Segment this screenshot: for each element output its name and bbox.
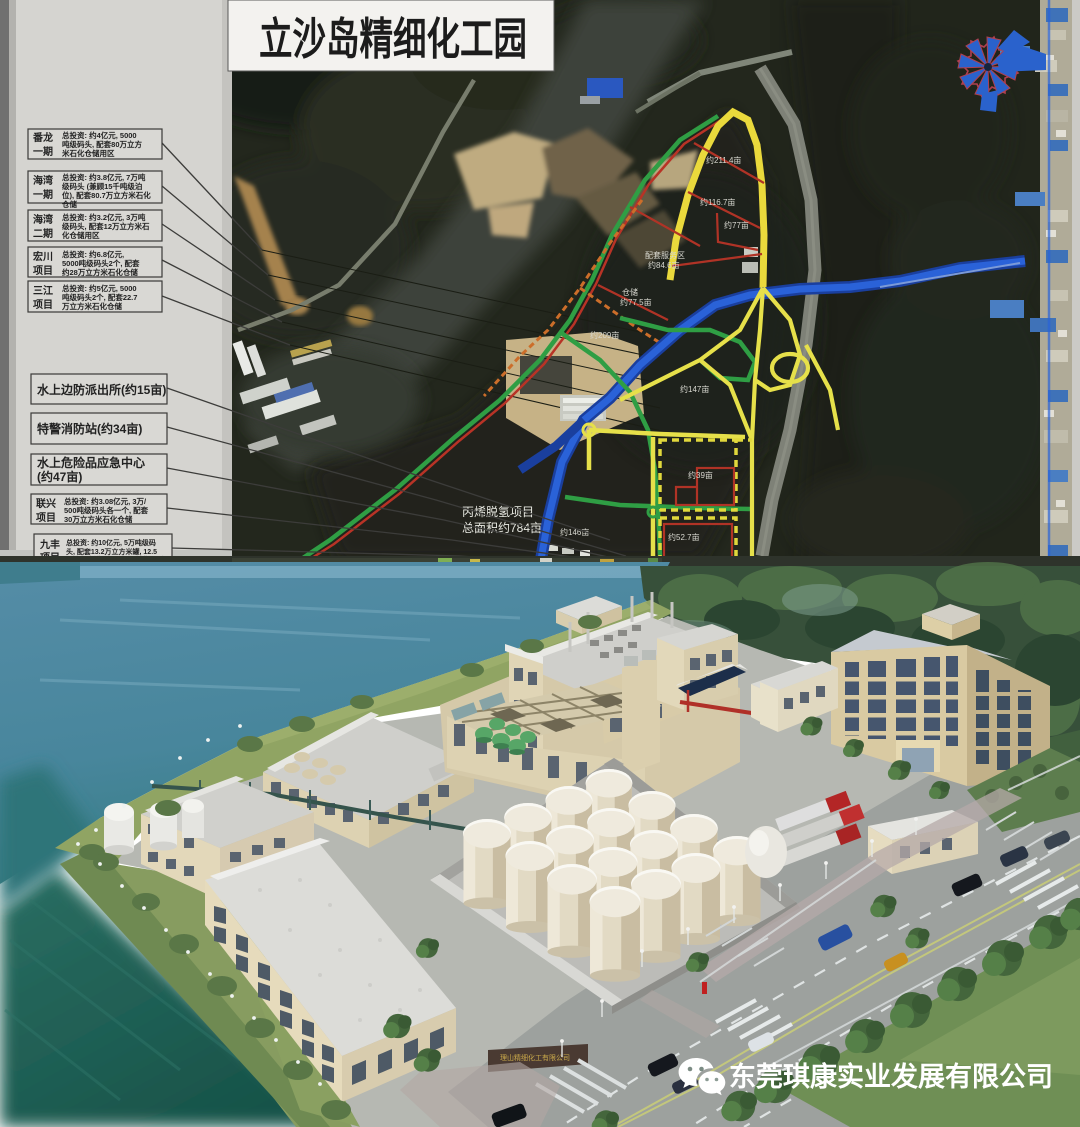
svg-text:约28万立方米石化仓储: 约28万立方米石化仓储	[62, 267, 138, 277]
svg-text:水上危险品应急中心: 水上危险品应急中心	[37, 455, 145, 470]
svg-text:海湾: 海湾	[33, 174, 53, 187]
svg-text:约77亩: 约77亩	[724, 220, 749, 230]
svg-text:项目: 项目	[36, 512, 56, 524]
svg-text:约77.5亩: 约77.5亩	[620, 297, 652, 307]
svg-text:吨级码头, 配套80万立方: 吨级码头, 配套80万立方	[62, 139, 143, 149]
svg-text:级码头 (兼顾15千吨级泊: 级码头 (兼顾15千吨级泊	[61, 181, 142, 191]
svg-text:项目: 项目	[33, 299, 53, 311]
svg-text:水上边防派出所(约15亩): 水上边防派出所(约15亩)	[37, 382, 166, 397]
svg-text:总投资: 约4亿元, 5000: 总投资: 约4亿元, 5000	[62, 130, 137, 140]
svg-text:化仓储用区: 化仓储用区	[62, 230, 100, 240]
svg-text:二期: 二期	[33, 227, 53, 240]
svg-text:级码头, 配套12万立方米石: 级码头, 配套12万立方米石	[61, 221, 150, 231]
svg-text:总投资: 约3.08亿元, 3万/: 总投资: 约3.08亿元, 3万/	[64, 496, 147, 506]
svg-text:九丰: 九丰	[39, 538, 60, 551]
svg-text:约39亩: 约39亩	[688, 470, 713, 480]
svg-text:三江: 三江	[33, 284, 53, 297]
svg-text:配套服务区: 配套服务区	[645, 250, 685, 260]
svg-text:宏川: 宏川	[33, 250, 53, 263]
svg-text:特警消防站(约34亩): 特警消防站(约34亩)	[37, 421, 142, 436]
svg-text:约116.7亩: 约116.7亩	[700, 197, 735, 207]
svg-text:米石化仓储用区: 米石化仓储用区	[62, 148, 115, 158]
svg-text:(约47亩): (约47亩)	[37, 469, 82, 484]
svg-text:约211.4亩: 约211.4亩	[706, 155, 741, 165]
svg-text:仓储: 仓储	[61, 199, 77, 209]
svg-text:总投资: 约5亿元, 5000: 总投资: 约5亿元, 5000	[62, 283, 137, 293]
svg-text:一期: 一期	[33, 188, 53, 201]
svg-text:头, 配套13.2万立方米罐, 12.5: 头, 配套13.2万立方米罐, 12.5	[66, 547, 157, 556]
svg-text:约84.6亩: 约84.6亩	[648, 260, 680, 270]
svg-text:位), 配套80.7万立方米石化: 位), 配套80.7万立方米石化	[62, 190, 151, 200]
svg-text:吨级码头2个, 配套22.7: 吨级码头2个, 配套22.7	[62, 292, 137, 302]
svg-text:联兴: 联兴	[36, 497, 56, 510]
svg-text:约209亩: 约209亩	[590, 330, 619, 340]
svg-text:约52.7亩: 约52.7亩	[668, 532, 700, 542]
svg-text:万立方米石化仓储: 万立方米石化仓储	[61, 301, 122, 311]
svg-text:番龙: 番龙	[32, 131, 53, 144]
svg-text:理山精细化工有限公司: 理山精细化工有限公司	[500, 1053, 570, 1062]
svg-text:立沙岛精细化工园: 立沙岛精细化工园	[259, 15, 527, 64]
svg-text:总投资: 约10亿元, 5万吨级码: 总投资: 约10亿元, 5万吨级码	[66, 538, 156, 547]
svg-text:海湾: 海湾	[33, 213, 53, 226]
svg-text:项目: 项目	[33, 265, 53, 277]
svg-text:约147亩: 约147亩	[680, 384, 709, 394]
svg-text:总投资: 约6.8亿元,: 总投资: 约6.8亿元,	[62, 249, 124, 259]
svg-text:东莞琪康实业发展有限公司: 东莞琪康实业发展有限公司	[729, 1061, 1053, 1092]
svg-text:总投资: 约3.2亿元, 3万吨: 总投资: 约3.2亿元, 3万吨	[62, 212, 146, 222]
svg-text:一期: 一期	[33, 145, 53, 158]
svg-text:仓储: 仓储	[622, 287, 638, 297]
svg-text:30万立方米石化仓储: 30万立方米石化仓储	[64, 514, 133, 524]
svg-text:500吨级码头各一个, 配套: 500吨级码头各一个, 配套	[64, 505, 149, 515]
svg-text:5000吨级码头2个, 配套: 5000吨级码头2个, 配套	[62, 258, 140, 268]
svg-text:总投资: 约3.8亿元, 7万吨: 总投资: 约3.8亿元, 7万吨	[62, 172, 146, 182]
